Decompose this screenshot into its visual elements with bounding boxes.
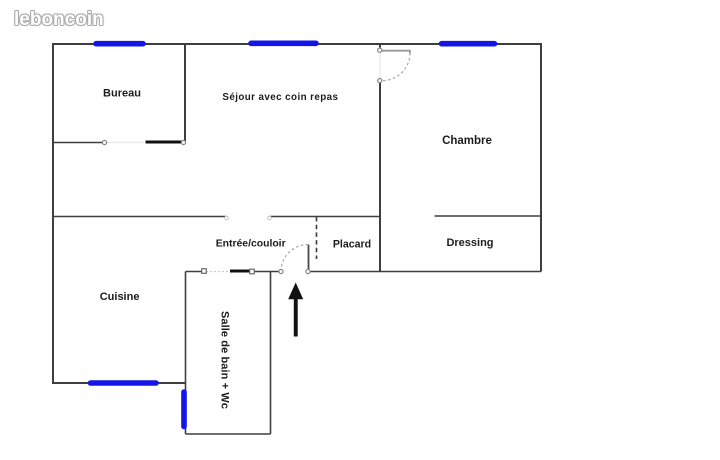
svg-text:Entrée/couloir: Entrée/couloir: [216, 238, 286, 249]
svg-text:Séjour avec coin repas: Séjour avec coin repas: [222, 92, 338, 103]
svg-text:Placard: Placard: [333, 238, 371, 250]
svg-text:Bureau: Bureau: [103, 88, 141, 100]
svg-text:Chambre: Chambre: [442, 135, 492, 147]
svg-text:Salle de bain + Wc: Salle de bain + Wc: [218, 311, 230, 409]
svg-text:Dressing: Dressing: [446, 237, 493, 249]
svg-text:Cuisine: Cuisine: [100, 291, 140, 303]
